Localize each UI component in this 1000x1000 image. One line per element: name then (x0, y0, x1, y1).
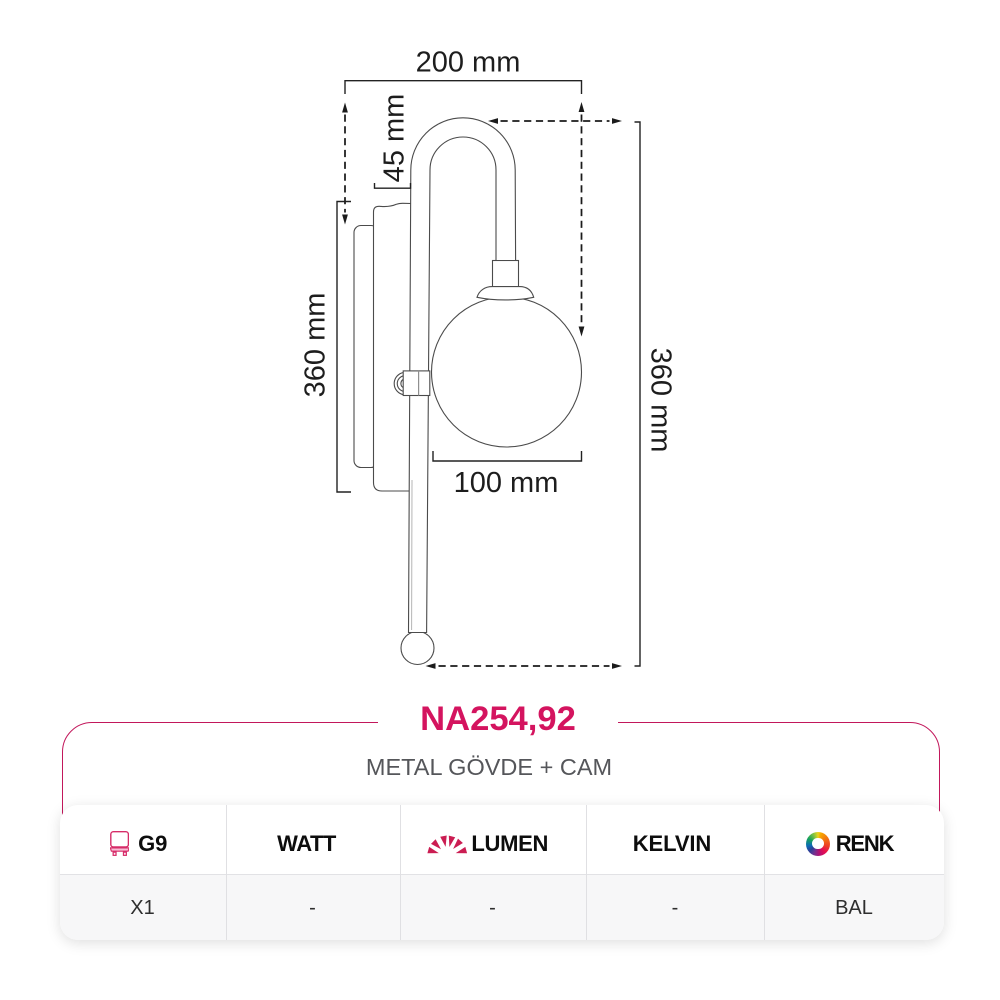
svg-text:100 mm: 100 mm (454, 467, 559, 499)
svg-text:360 mm: 360 mm (300, 293, 332, 398)
svg-text:45 mm: 45 mm (379, 94, 411, 183)
svg-text:200 mm: 200 mm (416, 47, 521, 79)
svg-text:360 mm: 360 mm (644, 348, 676, 453)
